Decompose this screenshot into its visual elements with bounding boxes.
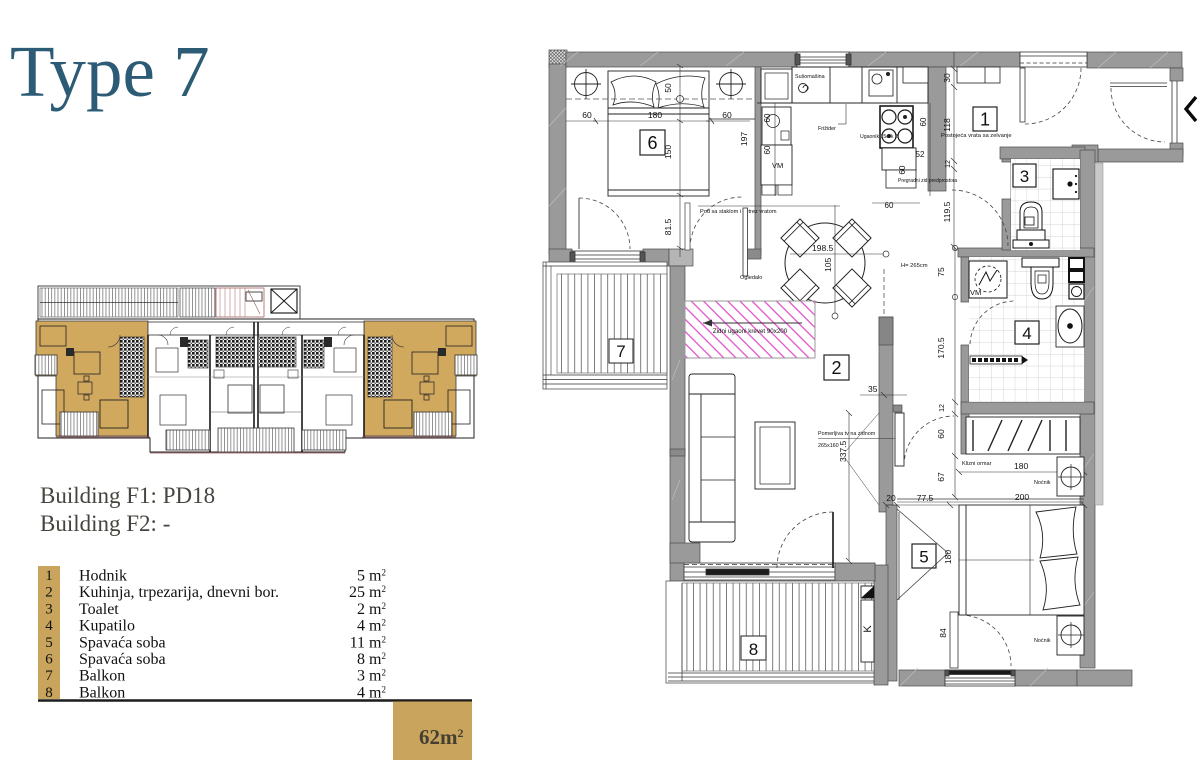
- svg-text:35: 35: [868, 384, 878, 394]
- svg-text:20: 20: [886, 493, 896, 503]
- svg-text:Hodnik: Hodnik: [79, 568, 127, 585]
- svg-text:Pod sa staklom i ketrez vratom: Pod sa staklom i ketrez vratom: [700, 209, 777, 215]
- svg-text:Pregradni zid predprostora: Pregradni zid predprostora: [898, 178, 957, 184]
- svg-text:K: K: [862, 625, 874, 633]
- svg-text:12: 12: [945, 160, 952, 168]
- svg-text:84: 84: [938, 628, 948, 638]
- svg-text:60: 60: [763, 145, 772, 154]
- svg-text:1: 1: [45, 568, 53, 584]
- svg-text:Sušomašina: Sušomašina: [795, 74, 825, 80]
- svg-text:25 m2: 25 m2: [349, 584, 386, 601]
- svg-text:4: 4: [1022, 324, 1031, 343]
- svg-text:198.5: 198.5: [812, 243, 834, 253]
- svg-text:337.5: 337.5: [838, 440, 848, 462]
- svg-text:5: 5: [919, 548, 928, 567]
- svg-text:6: 6: [45, 652, 53, 668]
- svg-text:8: 8: [749, 640, 758, 659]
- svg-text:Pomerljiva tv na zidnom: Pomerljiva tv na zidnom: [818, 431, 876, 437]
- svg-text:60: 60: [722, 110, 732, 120]
- svg-text:180: 180: [648, 110, 662, 120]
- svg-text:Kuhinja, trpezarija, dnevni bo: Kuhinja, trpezarija, dnevni bor.: [79, 584, 279, 601]
- svg-text:8: 8: [45, 685, 53, 701]
- svg-text:119.5: 119.5: [942, 201, 952, 222]
- svg-text:Building F2: -: Building F2: -: [40, 511, 170, 536]
- svg-text:200: 200: [1015, 492, 1029, 502]
- svg-text:Building F1: PD18: Building F1: PD18: [40, 483, 215, 508]
- svg-text:60: 60: [898, 165, 907, 174]
- svg-text:81.5: 81.5: [663, 218, 673, 235]
- svg-text:Balkon: Balkon: [79, 684, 125, 701]
- svg-text:52: 52: [916, 150, 925, 159]
- svg-text:265x160: 265x160: [818, 443, 839, 449]
- svg-text:Noćnik: Noćnik: [1034, 638, 1051, 644]
- svg-text:VM: VM: [772, 161, 783, 170]
- svg-text:77.5: 77.5: [917, 493, 934, 503]
- svg-text:Ugaonik 15erk 2: Ugaonik 15erk 2: [860, 134, 898, 140]
- svg-text:VM: VM: [970, 288, 981, 297]
- svg-text:4: 4: [45, 618, 53, 634]
- svg-text:60: 60: [582, 110, 592, 120]
- svg-text:Postojeća vrata sa zelvanje: Postojeća vrata sa zelvanje: [941, 133, 1012, 139]
- svg-text:Noćnik: Noćnik: [1034, 480, 1051, 486]
- svg-text:62m2: 62m2: [419, 725, 464, 749]
- svg-text:1: 1: [980, 110, 990, 130]
- svg-text:Zidni ugaoni krevet 90x200: Zidni ugaoni krevet 90x200: [713, 328, 788, 335]
- svg-text:60: 60: [885, 201, 894, 210]
- svg-text:7: 7: [616, 342, 625, 361]
- svg-text:50: 50: [663, 83, 673, 93]
- svg-text:60: 60: [936, 429, 946, 439]
- svg-text:105: 105: [823, 258, 833, 272]
- svg-text:Balkon: Balkon: [79, 668, 125, 685]
- svg-text:12: 12: [939, 404, 946, 412]
- svg-text:Spavaća soba: Spavaća soba: [79, 634, 166, 651]
- svg-text:H= 265cm: H= 265cm: [901, 263, 928, 269]
- svg-text:180: 180: [1014, 461, 1028, 471]
- svg-text:Spavaća soba: Spavaća soba: [79, 651, 166, 668]
- svg-text:118: 118: [942, 118, 952, 132]
- svg-text:60: 60: [763, 113, 772, 122]
- svg-text:30: 30: [942, 73, 952, 83]
- svg-text:7: 7: [45, 668, 53, 684]
- svg-text:6: 6: [647, 133, 657, 153]
- svg-text:11 m2: 11 m2: [350, 634, 386, 651]
- svg-text:3: 3: [1020, 167, 1029, 186]
- svg-text:Kupatilo: Kupatilo: [79, 618, 135, 635]
- svg-text:2: 2: [831, 358, 841, 378]
- svg-text:3: 3: [45, 601, 53, 617]
- svg-text:5: 5: [45, 635, 53, 651]
- svg-text:Ogledalo: Ogledalo: [740, 275, 762, 281]
- svg-text:Type 7: Type 7: [10, 31, 210, 112]
- svg-text:Klizni ormar: Klizni ormar: [962, 461, 992, 467]
- svg-text:60: 60: [919, 117, 928, 126]
- svg-text:Toalet: Toalet: [79, 601, 119, 618]
- svg-text:67: 67: [936, 472, 946, 482]
- svg-text:2: 2: [45, 585, 53, 601]
- svg-text:197: 197: [739, 132, 749, 146]
- svg-text:75: 75: [936, 267, 946, 277]
- svg-text:180: 180: [943, 550, 953, 564]
- svg-text:150: 150: [663, 145, 673, 159]
- svg-text:Frižider: Frižider: [818, 126, 836, 132]
- svg-text:170.5: 170.5: [936, 337, 946, 359]
